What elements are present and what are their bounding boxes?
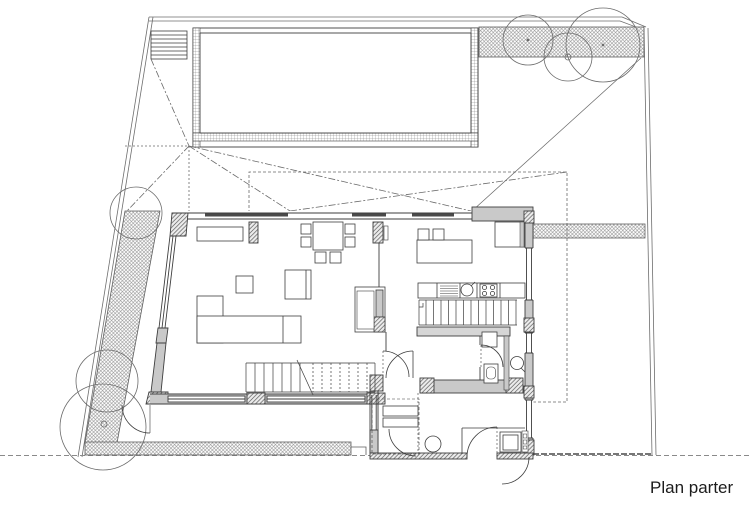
sideboard (197, 227, 243, 241)
hedge-right (533, 224, 645, 238)
hedge-bottom-step (351, 447, 366, 455)
window-dark-segment (352, 214, 386, 217)
tall-cabinet-side (520, 222, 524, 247)
window-dark-segment (412, 214, 454, 217)
floor-plan-page: Plan parter (0, 0, 750, 508)
east-pier (524, 211, 534, 223)
east-pier (524, 318, 534, 332)
east-pier (524, 386, 534, 398)
sight-line-ne (472, 58, 641, 211)
entry-west-solid (370, 430, 378, 453)
pool-tile-band-left (193, 28, 200, 147)
kitchen-island (417, 240, 472, 263)
boiler-inner (503, 435, 518, 450)
pool-tile-band-bottom (193, 133, 478, 141)
dining-chair (301, 224, 311, 234)
shower (482, 332, 497, 347)
entry-west-pier (370, 375, 383, 391)
pool-deck-steps (151, 31, 187, 59)
entry-south-wall (497, 453, 533, 459)
tree-trunk-dot (527, 39, 529, 41)
tree-trunk-dot (602, 44, 604, 46)
entry-exterior-swing (502, 457, 529, 484)
swimming-pool (193, 28, 478, 147)
bench (383, 418, 418, 427)
drawing-title: Plan parter (650, 478, 733, 497)
coffee-table (236, 276, 253, 293)
north-pier (373, 222, 383, 243)
dining-chair (330, 252, 341, 263)
fireplace (355, 287, 385, 332)
fireplace-pier (374, 317, 385, 332)
dining-chair (345, 224, 355, 234)
boundary-top (149, 17, 622, 21)
hedge-bottom (85, 442, 351, 455)
dining-table (313, 222, 343, 250)
lounge-chair (285, 270, 311, 299)
boundary-right (644, 28, 656, 455)
dining-chair (315, 252, 326, 263)
floor-plan-drawing: Plan parter (0, 0, 750, 508)
pool-tile-band-right (471, 28, 478, 147)
sofa-body (197, 316, 301, 343)
fireplace-hearth (357, 291, 374, 329)
east-window (525, 333, 534, 353)
toilet-seat (487, 367, 496, 379)
hedge-top (479, 27, 644, 57)
bath-partition (504, 336, 509, 390)
hall-wall-pier (420, 378, 434, 393)
dining-chair (345, 237, 355, 247)
dining-chair (301, 237, 311, 247)
south-pier (247, 393, 265, 404)
north-pier-trim (384, 226, 388, 240)
fireplace-flue (376, 290, 383, 317)
island-stool (433, 229, 444, 240)
tall-cabinet (495, 222, 524, 247)
east-window (525, 248, 534, 300)
bench (383, 406, 418, 416)
north-pier (249, 222, 258, 243)
island-stool (418, 229, 429, 240)
pool-basin (200, 33, 471, 133)
west-mid-pier (156, 328, 168, 343)
window-dark-segment (205, 214, 288, 217)
west-corner-pier (170, 213, 188, 236)
